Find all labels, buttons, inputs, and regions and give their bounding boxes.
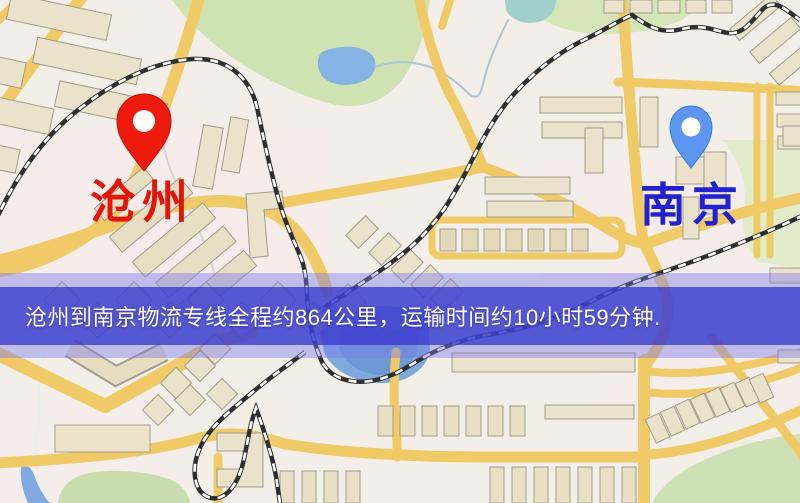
- destination-city-label[interactable]: 南京: [640, 182, 744, 228]
- destination-pin-hole: [682, 118, 701, 137]
- origin-pin-hole: [133, 110, 155, 132]
- origin-city-label[interactable]: 沧州: [90, 179, 194, 225]
- route-info-banner: 沧州到南京物流专线全程约864公里，运输时间约10小时59分钟.: [0, 287, 800, 345]
- map-screenshot: 沧州到南京物流专线全程约864公里，运输时间约10小时59分钟. 沧州 南京: [0, 0, 800, 503]
- route-info-text: 沧州到南京物流专线全程约864公里，运输时间约10小时59分钟.: [0, 300, 661, 332]
- map-canvas[interactable]: [0, 0, 800, 503]
